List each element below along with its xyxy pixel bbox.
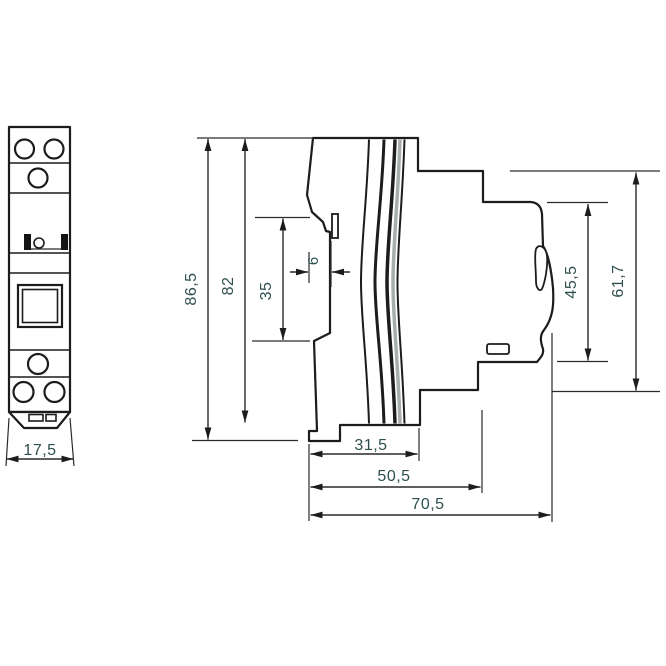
lock-tab bbox=[24, 234, 31, 250]
terminal-screw-icon bbox=[45, 140, 64, 159]
dim-label-front-width: 17,5 bbox=[23, 442, 56, 459]
dim-label-din-rail-seat: 35 bbox=[258, 282, 275, 301]
terminal-screw-icon bbox=[14, 382, 34, 402]
dim-label-hook-tab: 6 bbox=[305, 257, 322, 265]
din-hook-tab bbox=[332, 214, 338, 238]
dim-din-rail-seat: 35 bbox=[252, 218, 310, 342]
terminal-screw-icon bbox=[28, 354, 48, 374]
side-profile-outline bbox=[307, 138, 553, 441]
dim-label-depth-total: 70,5 bbox=[411, 496, 444, 513]
dim-label-depth-rear: 31,5 bbox=[354, 437, 387, 454]
label-holder-slot bbox=[487, 344, 509, 354]
side-view bbox=[307, 138, 553, 441]
lock-tab bbox=[61, 234, 68, 250]
dimension-drawing-svg: 17,5 86,5 bbox=[0, 0, 666, 666]
dim-label-total-height: 86,5 bbox=[183, 272, 200, 305]
dim-front-section-height: 45,5 bbox=[547, 203, 608, 362]
dim-label-front-section-height: 45,5 bbox=[563, 265, 580, 298]
terminal-screw-icon bbox=[15, 140, 34, 159]
dim-label-front-total-height: 61,7 bbox=[610, 264, 627, 297]
dim-total-height: 86,5 bbox=[183, 139, 298, 441]
drawing-canvas: 17,5 86,5 bbox=[0, 0, 666, 666]
terminal-screw-icon bbox=[29, 169, 48, 188]
dim-body-height: 82 bbox=[220, 139, 245, 423]
base-detail bbox=[29, 415, 43, 422]
dim-label-depth-mid: 50,5 bbox=[377, 468, 410, 485]
base-detail bbox=[46, 415, 56, 422]
front-view: 17,5 bbox=[6, 127, 74, 466]
dim-label-body-height: 82 bbox=[220, 277, 237, 296]
indicator-window-inner bbox=[23, 290, 58, 323]
terminal-screw-icon bbox=[45, 382, 65, 402]
